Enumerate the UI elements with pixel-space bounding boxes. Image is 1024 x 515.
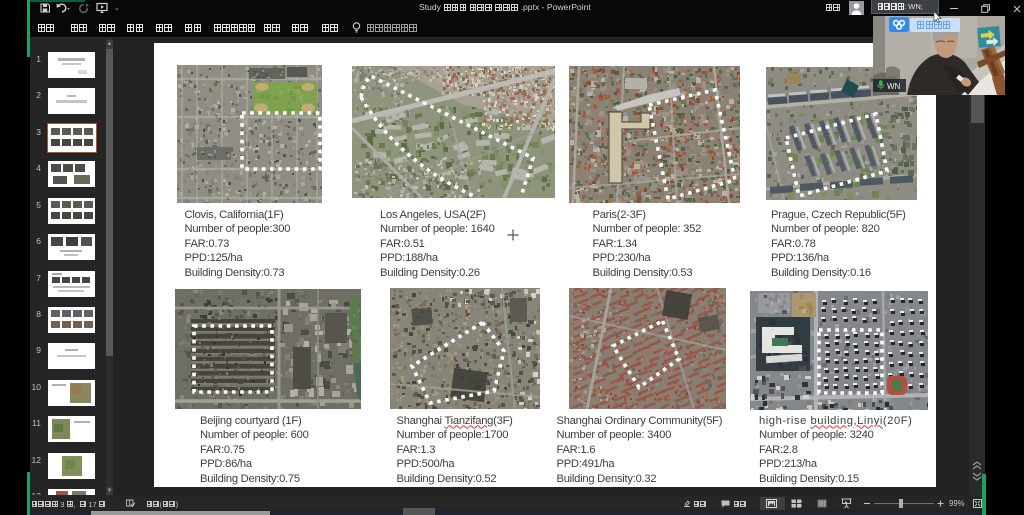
svg-text:WN: WN <box>887 82 901 91</box>
